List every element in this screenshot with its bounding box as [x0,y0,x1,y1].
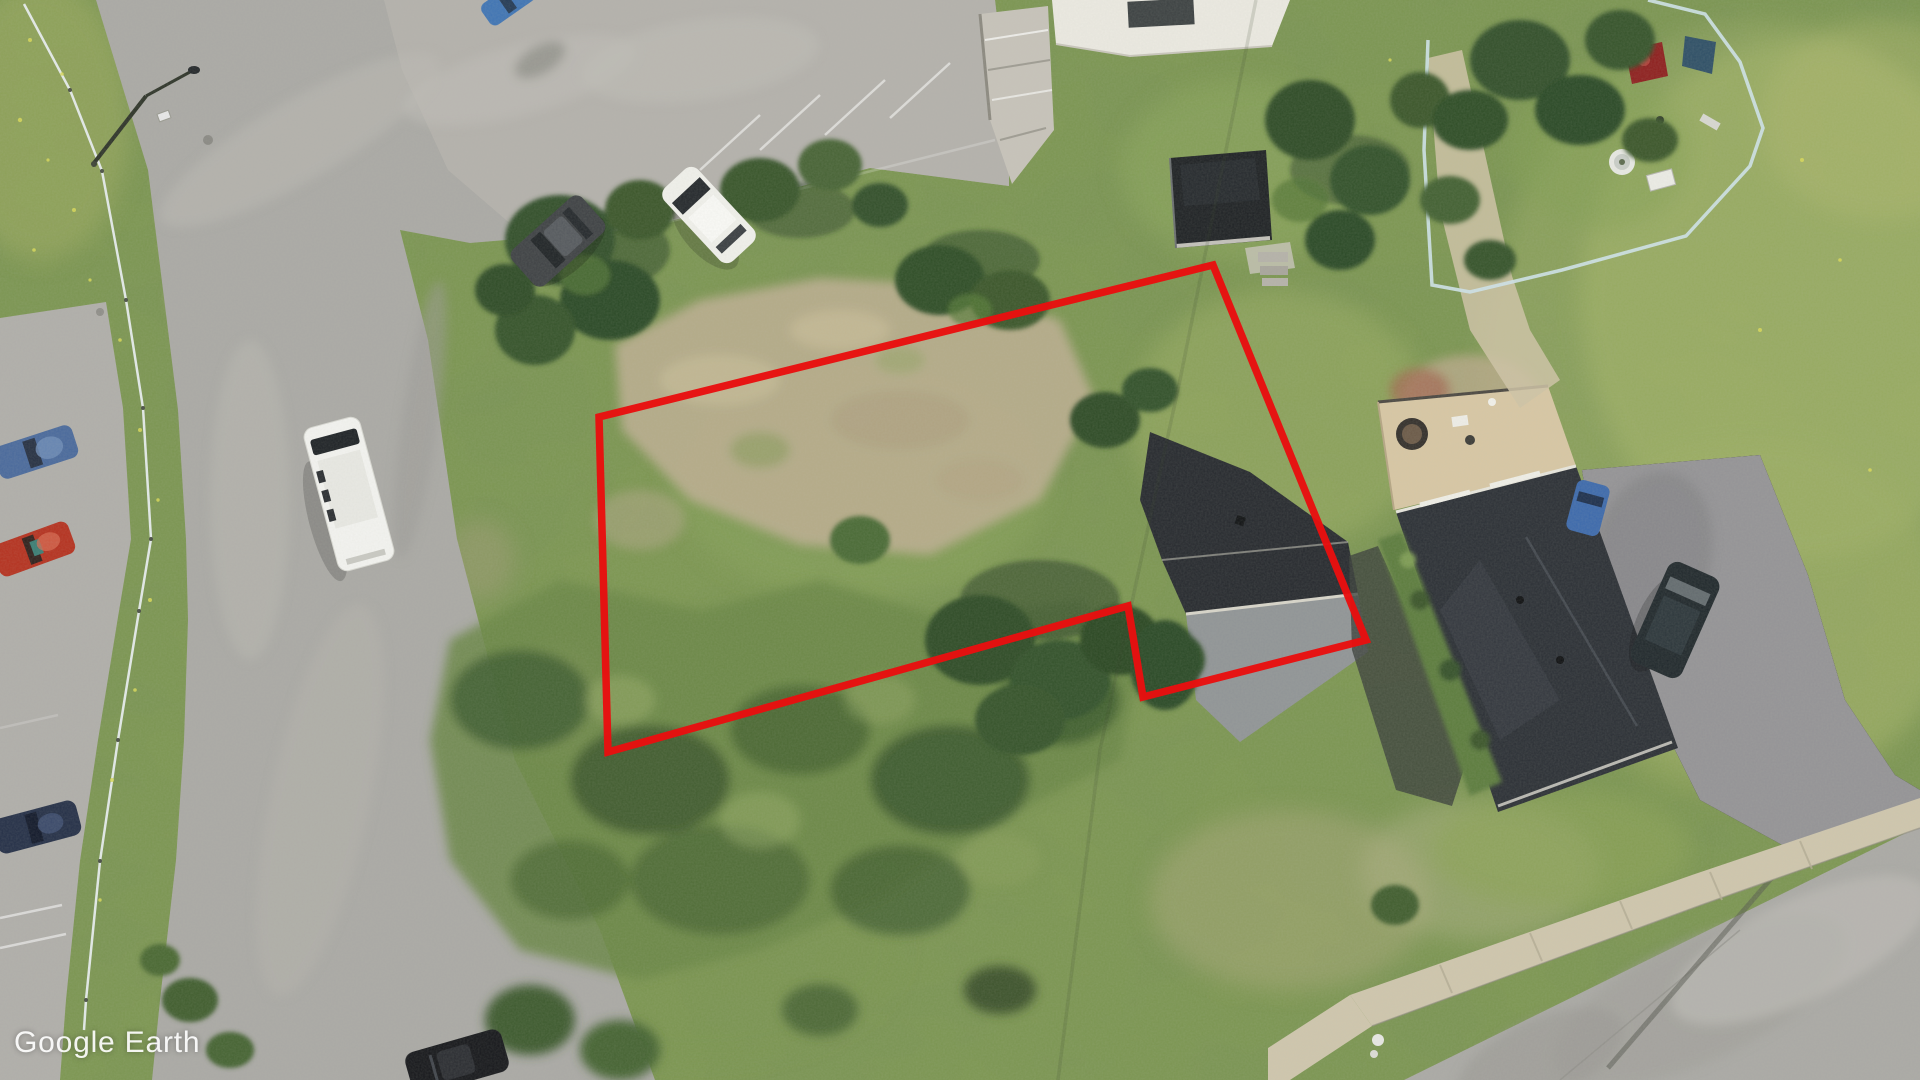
photo-grain [0,0,1920,1080]
google-earth-watermark: Google Earth [14,1026,200,1060]
earth-viewport[interactable]: Google Earth [0,0,1920,1080]
aerial-imagery [0,0,1920,1080]
